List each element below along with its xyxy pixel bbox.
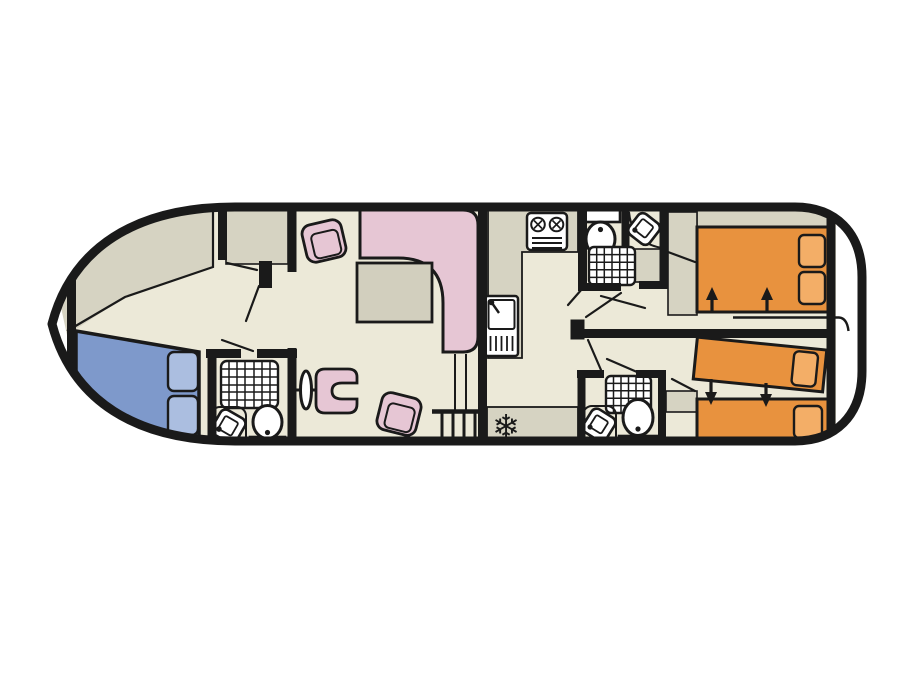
- corridor-wardrobe: [633, 249, 664, 282]
- aft-cabin-port-wardrobe: [668, 212, 697, 315]
- stove-icon: [527, 213, 567, 250]
- galley-sink-icon: [485, 296, 518, 356]
- aft-starboard-pillow-1: [791, 351, 818, 387]
- aft-port-pillow-1: [799, 235, 825, 267]
- aft-port-pillow-2: [799, 272, 825, 304]
- bow-bed-pillow-1: [168, 352, 198, 391]
- bow-shower-icon: [221, 361, 278, 408]
- aft-cabin-starboard-wardrobe: [666, 391, 697, 412]
- boat-floor-plan-page: ❄: [0, 0, 901, 675]
- saloon-chair-2: [375, 391, 423, 438]
- saloon-table: [357, 263, 432, 322]
- steering-wheel-icon: [301, 371, 312, 409]
- fwd-shower-icon: [589, 247, 635, 285]
- boat-floor-plan: ❄: [0, 0, 901, 675]
- bow-bed-pillow-2: [168, 396, 198, 435]
- aft-starboard-pillow-2: [794, 406, 822, 438]
- saloon-chair-1: [300, 218, 348, 264]
- bow-wardrobe: [226, 208, 288, 264]
